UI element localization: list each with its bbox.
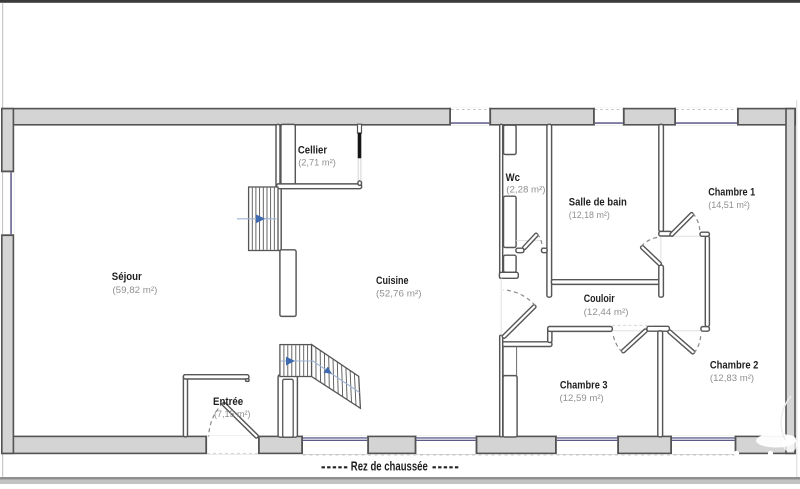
svg-text:(12,59 m²): (12,59 m²): [560, 393, 604, 404]
svg-text:Chambre 2: Chambre 2: [710, 359, 759, 371]
svg-text:Rez de chaussée: Rez de chaussée: [351, 460, 428, 474]
svg-text:(59,82 m²): (59,82 m²): [112, 285, 157, 296]
svg-text:Wc: Wc: [506, 172, 520, 184]
svg-text:Chambre 1: Chambre 1: [708, 187, 756, 199]
svg-text:(12,18 m²): (12,18 m²): [569, 210, 610, 221]
svg-text:(52,76 m²): (52,76 m²): [376, 289, 422, 300]
svg-text:(7,15 m²): (7,15 m²): [214, 409, 251, 420]
svg-text:Chambre 3: Chambre 3: [560, 379, 608, 391]
svg-text:Couloir: Couloir: [584, 293, 615, 305]
svg-text:Cuisine: Cuisine: [376, 275, 409, 287]
svg-text:(2,71 m²): (2,71 m²): [298, 157, 336, 168]
svg-text:Séjour: Séjour: [112, 271, 142, 283]
svg-text:(12,44 m²): (12,44 m²): [584, 307, 629, 318]
svg-text:Entrée: Entrée: [213, 396, 243, 408]
svg-text:(2,28 m²): (2,28 m²): [506, 185, 545, 196]
svg-text:Cellier: Cellier: [298, 144, 328, 156]
svg-text:Salle de bain: Salle de bain: [569, 197, 627, 209]
svg-text:(14,51 m²): (14,51 m²): [708, 200, 750, 211]
svg-text:(12,83 m²): (12,83 m²): [710, 373, 754, 384]
